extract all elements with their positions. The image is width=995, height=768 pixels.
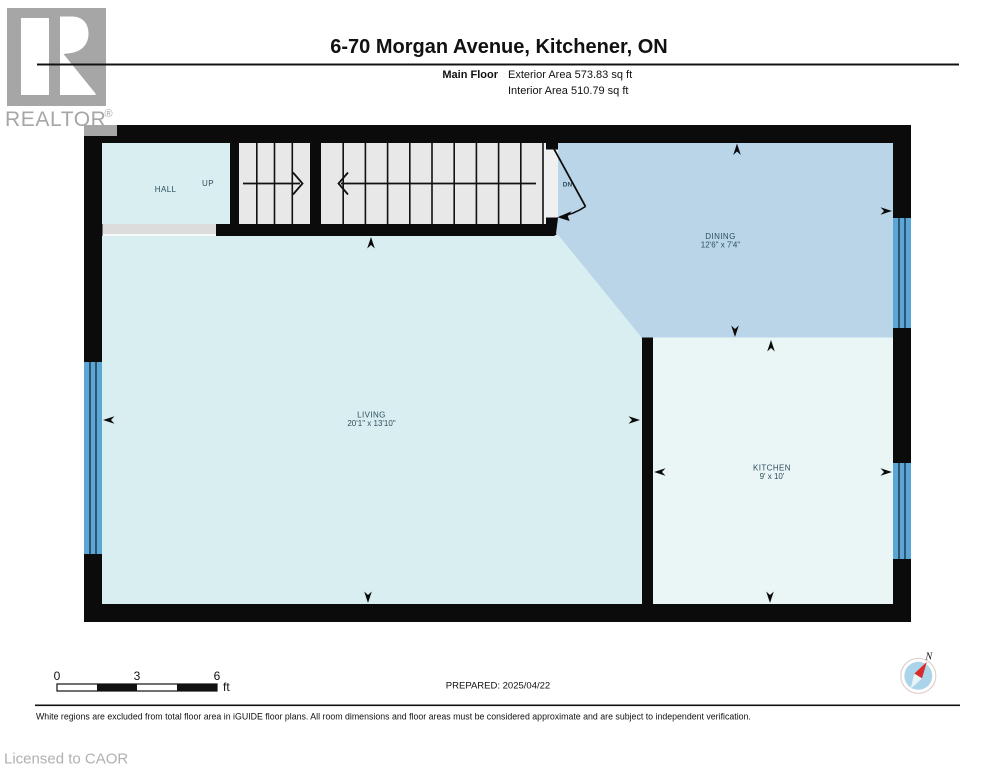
svg-text:6-70 Morgan Avenue, Kitchener,: 6-70 Morgan Avenue, Kitchener, ON (330, 36, 668, 58)
svg-text:N: N (925, 652, 934, 663)
svg-text:DN: DN (563, 182, 573, 189)
svg-text:White regions are excluded fro: White regions are excluded from total fl… (36, 712, 751, 722)
svg-text:Licensed to CAOR: Licensed to CAOR (4, 751, 128, 768)
svg-text:20'1" x 13'10": 20'1" x 13'10" (347, 419, 395, 428)
svg-text:9' x 10': 9' x 10' (760, 472, 785, 481)
svg-text:6: 6 (214, 669, 221, 683)
svg-text:ft: ft (223, 680, 230, 694)
svg-text:Exterior Area 573.83 sq ft: Exterior Area 573.83 sq ft (508, 69, 632, 81)
svg-text:12'6" x 7'4": 12'6" x 7'4" (701, 241, 741, 250)
svg-text:HALL: HALL (155, 185, 177, 194)
svg-text:UP: UP (202, 179, 214, 188)
svg-text:3: 3 (134, 669, 141, 683)
svg-text:PREPARED: 2025/04/22: PREPARED: 2025/04/22 (446, 681, 550, 692)
svg-text:Main Floor: Main Floor (442, 69, 498, 81)
svg-text:Interior Area 510.79 sq ft: Interior Area 510.79 sq ft (508, 85, 628, 97)
svg-text:0: 0 (54, 669, 61, 683)
svg-text:®: ® (105, 108, 113, 120)
